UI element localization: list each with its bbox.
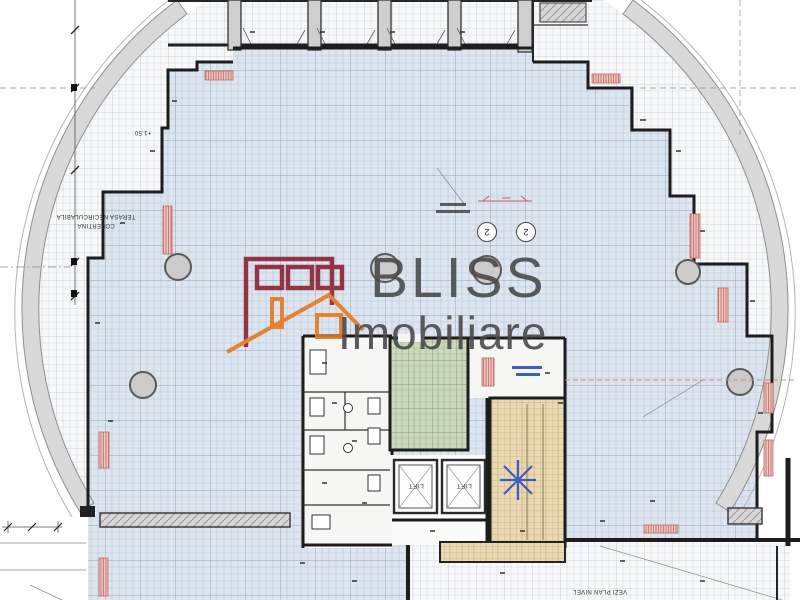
- canopy-bar-left: [100, 513, 290, 527]
- lift-label: LIFT: [456, 482, 471, 489]
- top-right-block: [540, 3, 586, 22]
- watermark-subtitle-text: Imobiliare: [338, 307, 547, 359]
- ramp: [440, 542, 565, 562]
- pilaster: [378, 0, 391, 50]
- grid-bubble-2: 2: [517, 223, 536, 242]
- radiator: [99, 558, 108, 596]
- floor-plan-sheet: LIFT LIFT: [0, 0, 800, 600]
- grid-bubble-label: 2: [523, 227, 528, 237]
- radiator: [764, 440, 773, 476]
- radiator: [482, 358, 494, 386]
- terrace-label-line1: COPERTINA: [77, 222, 115, 228]
- column: [130, 372, 156, 398]
- floor-plan-drawing: LIFT LIFT: [0, 0, 800, 600]
- radiator: [644, 525, 678, 533]
- radiator: [690, 214, 700, 258]
- column: [727, 369, 753, 395]
- level-note-label: VEZI PLAN NIVEL: [573, 588, 628, 594]
- radiator: [592, 74, 620, 83]
- watermark-brand-text: BLISS: [370, 246, 547, 310]
- elevator-shaft-1: LIFT: [394, 460, 437, 513]
- elevation-label: +1.50: [134, 129, 151, 135]
- pilaster: [518, 0, 532, 52]
- column: [676, 260, 700, 284]
- pilaster: [228, 0, 241, 50]
- column: [165, 254, 191, 280]
- canopy-bar-right: [728, 508, 762, 524]
- north-arrow-icon: [500, 460, 536, 500]
- terrace-label-line2: TERASA NECIRCULABILA: [56, 213, 135, 219]
- radiator: [205, 71, 233, 80]
- grid-bubble-label: 2: [484, 227, 489, 237]
- lift-label: LIFT: [408, 482, 423, 489]
- radiator: [99, 432, 109, 468]
- radiator: [764, 383, 773, 413]
- pilaster: [448, 0, 461, 50]
- pilaster: [308, 0, 321, 50]
- central-core: LIFT LIFT: [303, 334, 565, 562]
- elevator-shaft-2: LIFT: [442, 460, 485, 513]
- radiator: [163, 206, 172, 254]
- grid-bubble-1: 2: [478, 223, 497, 242]
- radiator: [718, 288, 728, 322]
